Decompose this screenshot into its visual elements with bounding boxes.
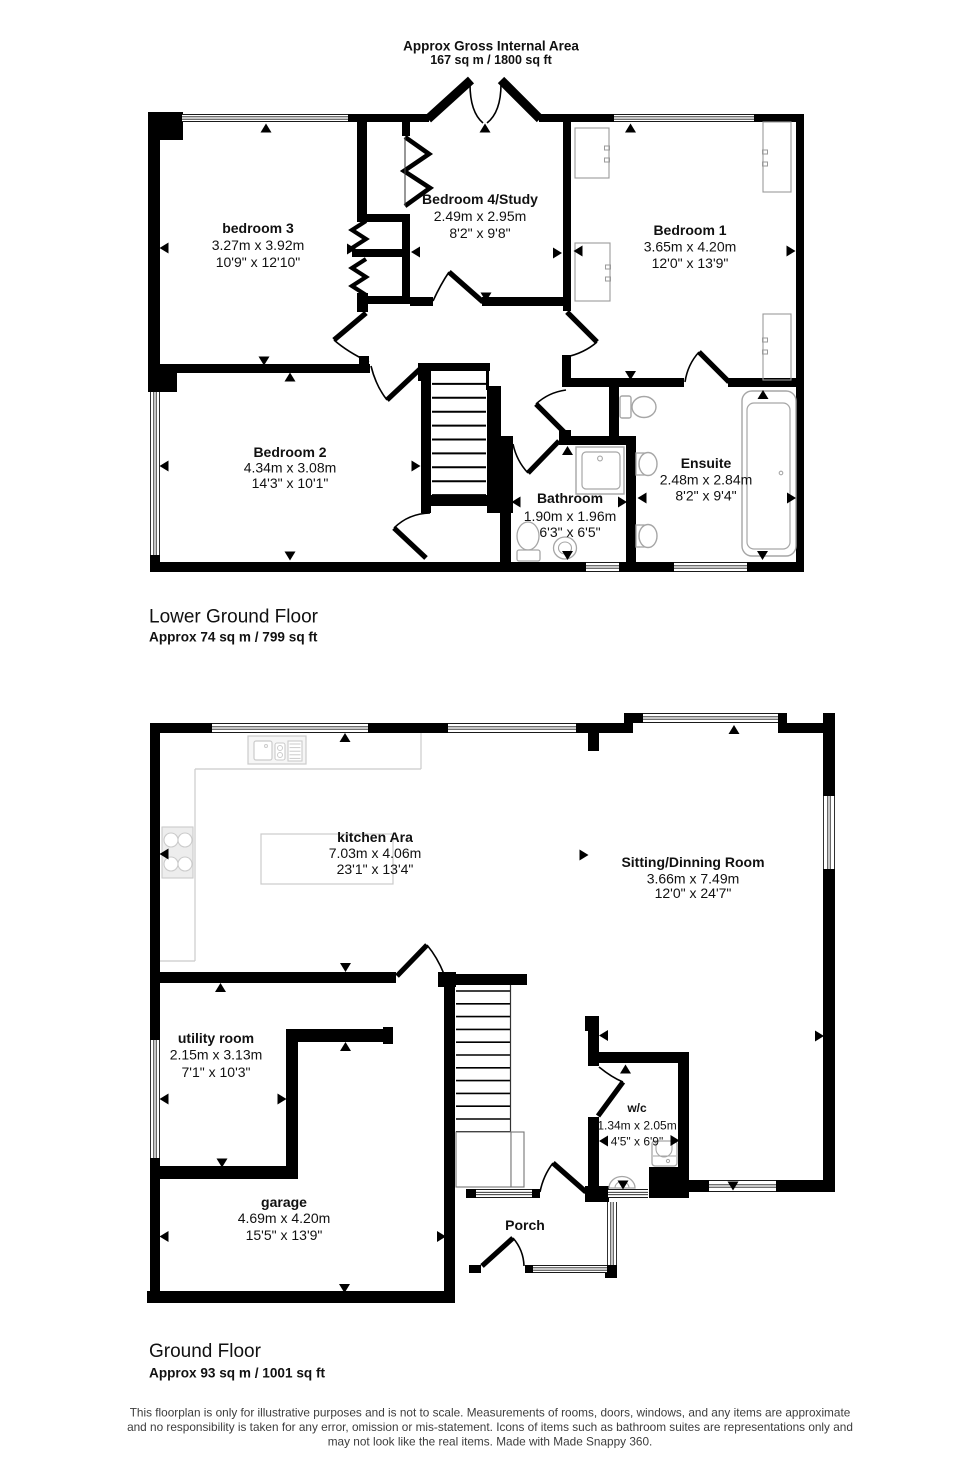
svg-text:utility room: utility room	[178, 1030, 254, 1046]
svg-text:8'2" x 9'8": 8'2" x 9'8"	[449, 225, 510, 241]
svg-text:167 sq m / 1800 sq ft: 167 sq m / 1800 sq ft	[430, 53, 552, 67]
svg-text:Approx 93 sq m / 1001 sq ft: Approx 93 sq m / 1001 sq ft	[149, 1366, 325, 1381]
svg-text:and no responsibility is taken: and no responsibility is taken for any e…	[127, 1420, 853, 1434]
svg-text:Ground Floor: Ground Floor	[149, 1341, 262, 1362]
svg-text:bedroom 3: bedroom 3	[222, 220, 294, 236]
svg-text:4.34m x 3.08m: 4.34m x 3.08m	[244, 460, 337, 476]
svg-text:14'3" x 10'1": 14'3" x 10'1"	[252, 475, 329, 491]
svg-text:2.48m x 2.84m: 2.48m x 2.84m	[660, 472, 753, 488]
svg-text:may not look like the real ite: may not look like the real items. Made w…	[328, 1435, 653, 1449]
svg-text:8'2" x 9'4": 8'2" x 9'4"	[675, 488, 736, 504]
svg-text:3.27m x 3.92m: 3.27m x 3.92m	[212, 237, 305, 253]
svg-text:4.69m x 4.20m: 4.69m x 4.20m	[238, 1210, 331, 1226]
svg-text:12'0" x 13'9": 12'0" x 13'9"	[652, 255, 729, 271]
svg-text:6'3" x 6'5": 6'3" x 6'5"	[539, 524, 600, 540]
svg-text:23'1" x 13'4": 23'1" x 13'4"	[337, 861, 414, 877]
svg-text:1.90m x 1.96m: 1.90m x 1.96m	[524, 508, 617, 524]
svg-text:w/c: w/c	[626, 1101, 647, 1115]
svg-text:15'5" x 13'9": 15'5" x 13'9"	[246, 1227, 323, 1243]
svg-text:Bathroom: Bathroom	[537, 490, 603, 506]
svg-text:Approx 74 sq m / 799 sq ft: Approx 74 sq m / 799 sq ft	[149, 630, 318, 645]
svg-text:10'9" x 12'10": 10'9" x 12'10"	[216, 254, 301, 270]
svg-text:Approx Gross Internal Area: Approx Gross Internal Area	[403, 39, 579, 54]
svg-text:3.65m x 4.20m: 3.65m x 4.20m	[644, 239, 737, 255]
svg-text:Sitting/Dinning Room: Sitting/Dinning Room	[621, 854, 764, 870]
svg-text:1.34m x 2.05m: 1.34m x 2.05m	[597, 1119, 676, 1133]
svg-text:Bedroom 1: Bedroom 1	[653, 222, 726, 238]
svg-text:7'1" x 10'3": 7'1" x 10'3"	[182, 1064, 251, 1080]
svg-text:Ensuite: Ensuite	[681, 455, 732, 471]
svg-text:Lower Ground Floor: Lower Ground Floor	[149, 606, 319, 627]
svg-text:garage: garage	[261, 1194, 307, 1210]
svg-text:12'0" x 24'7": 12'0" x 24'7"	[655, 885, 732, 901]
svg-text:kitchen Ara: kitchen Ara	[337, 829, 413, 845]
svg-text:2.49m x 2.95m: 2.49m x 2.95m	[434, 208, 527, 224]
svg-text:7.03m x 4.06m: 7.03m x 4.06m	[329, 845, 422, 861]
svg-text:Bedroom 4/Study: Bedroom 4/Study	[422, 191, 538, 207]
svg-text:Porch: Porch	[505, 1217, 545, 1233]
svg-text:Bedroom 2: Bedroom 2	[253, 444, 326, 460]
svg-text:This floorplan is only for ill: This floorplan is only for illustrative …	[130, 1406, 851, 1420]
svg-text:2.15m x 3.13m: 2.15m x 3.13m	[170, 1047, 263, 1063]
svg-text:4'5" x 6'9": 4'5" x 6'9"	[611, 1135, 663, 1149]
